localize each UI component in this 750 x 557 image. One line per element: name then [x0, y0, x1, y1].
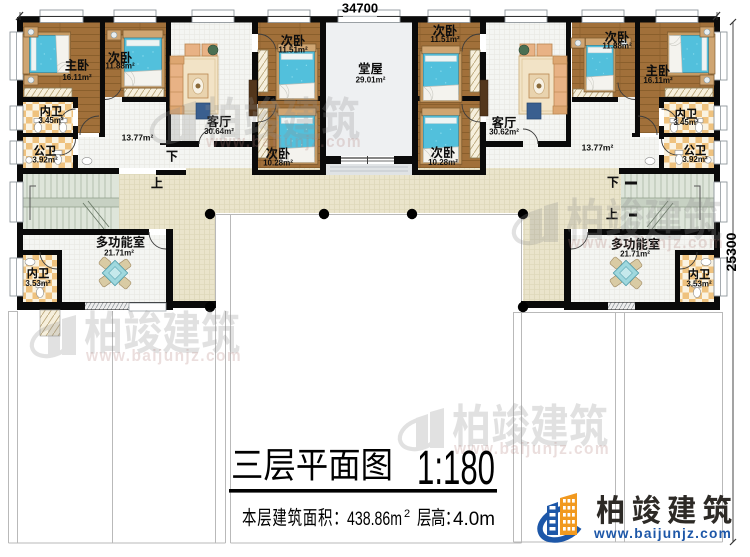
svg-text:3.45m²: 3.45m² [673, 118, 699, 127]
svg-text:11.88m²: 11.88m² [105, 62, 135, 71]
svg-text:www.baijunjz.com: www.baijunjz.com [593, 526, 732, 541]
svg-text:www.baijunjz.com: www.baijunjz.com [205, 133, 362, 151]
svg-text:11.51m²: 11.51m² [278, 46, 308, 55]
svg-text:1:180: 1:180 [417, 442, 495, 495]
svg-text:4.0m: 4.0m [453, 509, 495, 530]
svg-text:3.92m²: 3.92m² [32, 156, 58, 165]
svg-text:25300: 25300 [723, 232, 739, 271]
svg-text:16.11m²: 16.11m² [62, 73, 92, 82]
svg-text:11.88m²: 11.88m² [602, 42, 632, 51]
svg-text:13.77m²: 13.77m² [122, 133, 154, 143]
svg-text:30.62m²: 30.62m² [489, 128, 519, 137]
svg-text:www.baijunjz.com: www.baijunjz.com [85, 347, 242, 365]
svg-text:3.53m²: 3.53m² [25, 279, 51, 288]
svg-text:3.92m²: 3.92m² [682, 155, 708, 164]
svg-text:438.86m: 438.86m [347, 509, 402, 530]
svg-text:www.baijunjz.com: www.baijunjz.com [567, 234, 724, 252]
svg-text:2: 2 [404, 508, 410, 520]
svg-text:10.28m²: 10.28m² [428, 158, 458, 167]
svg-text:10.28m²: 10.28m² [263, 159, 293, 168]
svg-text:3.53m²: 3.53m² [686, 280, 712, 289]
svg-text:29.01m²: 29.01m² [356, 76, 386, 85]
svg-text:3.45m²: 3.45m² [38, 116, 64, 125]
svg-text:13.77m²: 13.77m² [582, 143, 614, 153]
svg-text:21.71m²: 21.71m² [104, 249, 134, 258]
svg-text:16.11m²: 16.11m² [643, 76, 673, 85]
svg-text:11.51m²: 11.51m² [430, 35, 460, 44]
svg-text:34700: 34700 [342, 1, 378, 16]
